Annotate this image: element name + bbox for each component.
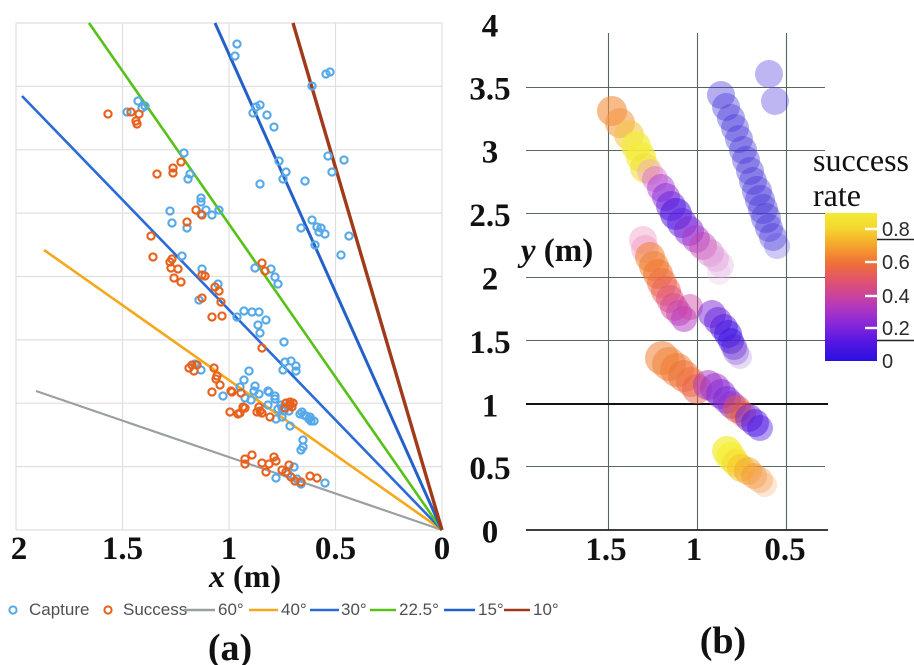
svg-text:0: 0 [882, 351, 893, 373]
svg-text:0.5: 0.5 [315, 531, 356, 567]
svg-text:10°: 10° [533, 600, 559, 619]
svg-text:1.5: 1.5 [585, 532, 626, 568]
svg-text:40°: 40° [281, 600, 307, 619]
svg-text:rate: rate [813, 177, 861, 213]
svg-text:1: 1 [482, 389, 499, 425]
svg-text:2: 2 [482, 262, 499, 298]
svg-text:0.2: 0.2 [882, 318, 910, 340]
svg-text:0: 0 [482, 515, 499, 551]
svg-text:0: 0 [434, 531, 451, 567]
svg-text:(a): (a) [208, 627, 252, 665]
svg-text:30°: 30° [341, 600, 367, 619]
svg-text:2.5: 2.5 [469, 198, 510, 234]
svg-text:1.5: 1.5 [469, 325, 510, 361]
svg-text:Success: Success [123, 600, 187, 619]
svg-text:15°: 15° [478, 600, 504, 619]
svg-text:0.4: 0.4 [882, 286, 910, 308]
svg-text:2: 2 [11, 531, 28, 567]
svg-text:0.6: 0.6 [882, 252, 910, 274]
svg-text:y (m): y (m) [517, 233, 593, 269]
svg-text:22.5°: 22.5° [399, 600, 439, 619]
svg-text:(b): (b) [700, 620, 746, 662]
svg-text:0.8: 0.8 [882, 219, 910, 241]
svg-text:4: 4 [482, 9, 499, 45]
svg-text:Capture: Capture [29, 600, 89, 619]
svg-text:60°: 60° [218, 600, 244, 619]
svg-text:3: 3 [482, 135, 499, 171]
svg-text:0.5: 0.5 [764, 532, 805, 568]
svg-text:1.5: 1.5 [102, 531, 143, 567]
svg-text:1: 1 [686, 532, 703, 568]
svg-text:0.5: 0.5 [469, 451, 510, 487]
svg-text:3.5: 3.5 [469, 72, 510, 108]
svg-text:success: success [813, 142, 909, 178]
svg-text:x (m): x (m) [208, 558, 281, 594]
